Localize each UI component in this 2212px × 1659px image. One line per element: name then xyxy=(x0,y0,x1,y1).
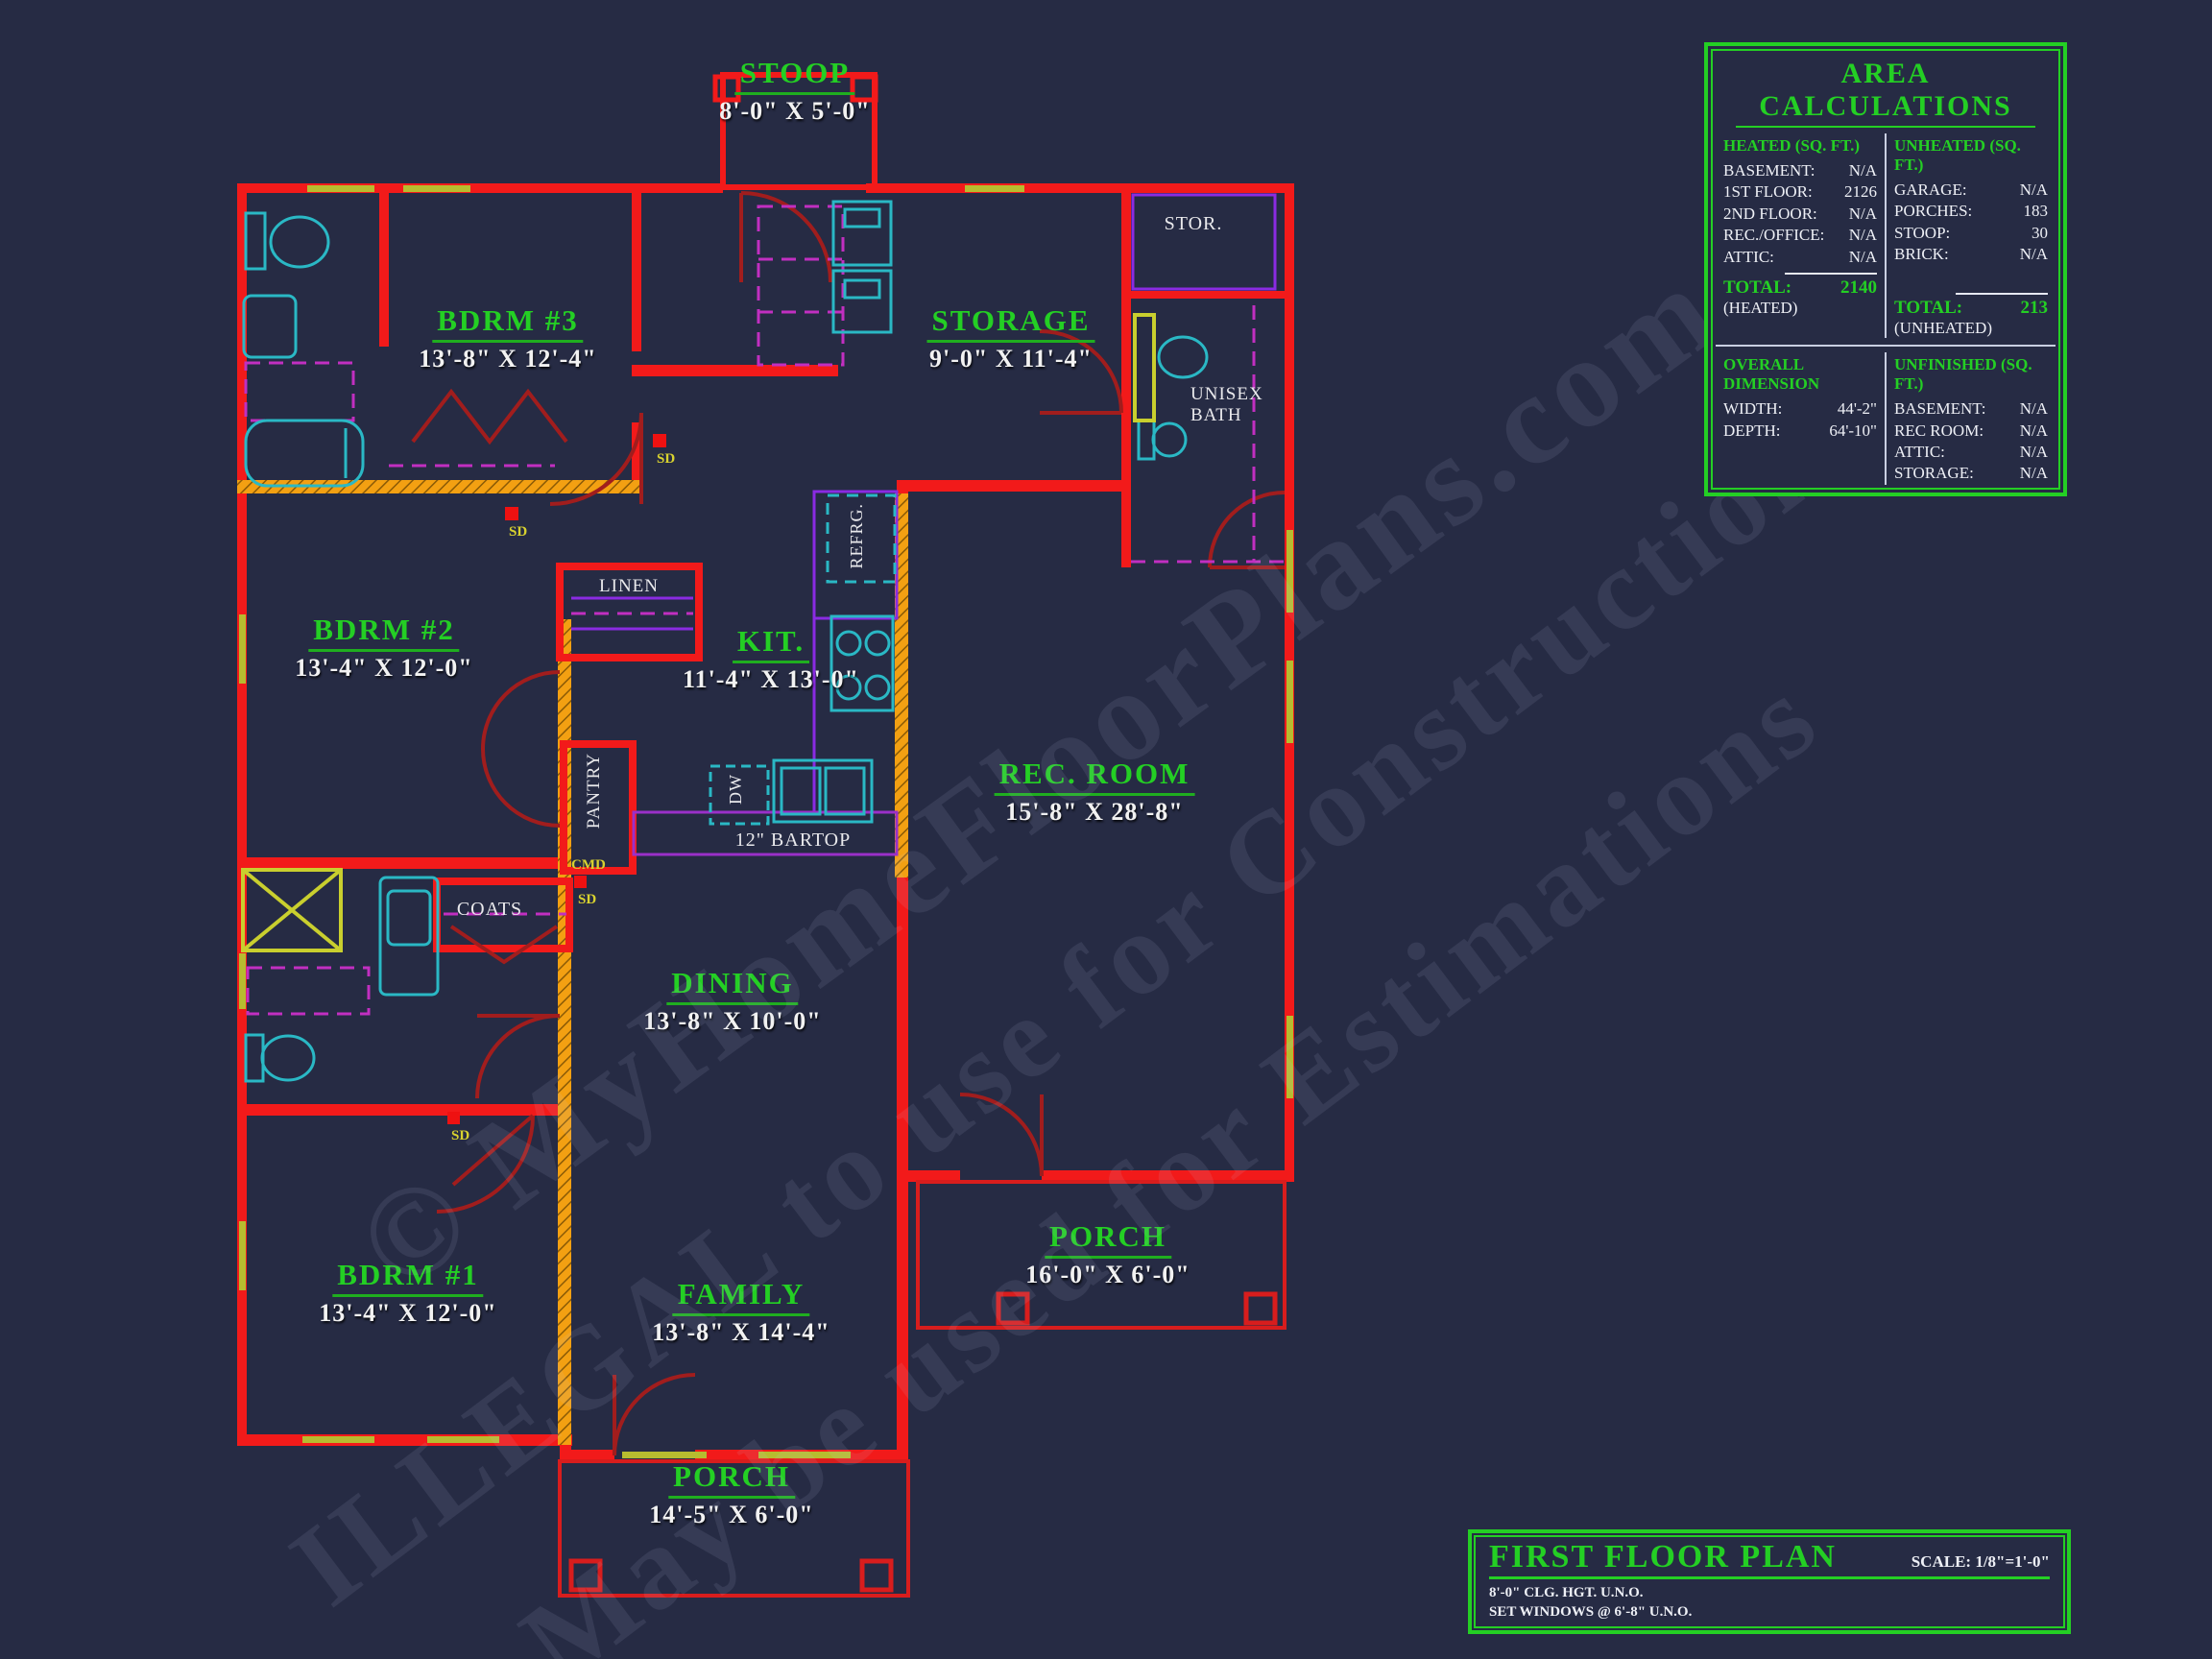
overall-dimension-column: OVERALL DIMENSION WIDTH:44'-2" DEPTH:64'… xyxy=(1716,352,1885,485)
room-label-bdrm2: BDRM #2 13'-4" X 12'-0" xyxy=(295,613,472,683)
heated-total-row: TOTAL:2140 xyxy=(1723,277,1877,299)
table-row: 2ND FLOOR:N/A xyxy=(1723,204,1877,225)
room-label-bdrm1: BDRM #1 13'-4" X 12'-0" xyxy=(319,1258,496,1328)
refrg-label: REFRG. xyxy=(847,503,867,569)
table-row: REC ROOM:N/A xyxy=(1894,421,2048,442)
unheated-total-row: TOTAL:213 xyxy=(1894,298,2048,319)
room-label-dining: DINING 13'-8" X 10'-0" xyxy=(643,966,821,1036)
room-label-kitchen: KIT. 11'-4" X 13'-0" xyxy=(683,624,859,694)
table-row: REC./OFFICE:N/A xyxy=(1723,225,1877,246)
table-row: GARAGE:N/A xyxy=(1894,180,2048,201)
area-calculations-panel: AREA CALCULATIONS HEATED (SQ. FT.) BASEM… xyxy=(1704,42,2067,496)
table-row: ATTIC:N/A xyxy=(1723,247,1877,268)
bartop-label: 12" BARTOP xyxy=(735,829,852,852)
heated-column: HEATED (SQ. FT.) BASEMENT:N/A 1ST FLOOR:… xyxy=(1716,133,1885,338)
room-label-rec-room: REC. ROOM 15'-8" X 28'-8" xyxy=(995,757,1195,827)
unisex-bath-label: UNISEX BATH xyxy=(1190,384,1263,426)
toilet-icon xyxy=(246,213,328,269)
pantry-label: PANTRY xyxy=(584,753,605,829)
table-row: DEPTH:64'-10" xyxy=(1723,421,1877,442)
dryer-icon xyxy=(833,271,891,332)
room-label-porch-bottom: PORCH 14'-5" X 6'-0" xyxy=(649,1459,813,1529)
cabinet-lines xyxy=(571,195,1275,811)
room-label-storage: STORAGE 9'-0" X 11'-4" xyxy=(926,303,1094,373)
unfinished-column: UNFINISHED (SQ. FT.) BASEMENT:N/A REC RO… xyxy=(1885,352,2056,485)
window-note: SET WINDOWS @ 6'-8" U.N.O. xyxy=(1489,1602,2050,1622)
room-label-stoop: STOOP 8'-0" X 5'-0" xyxy=(719,56,870,126)
dw-label: DW xyxy=(726,774,746,805)
table-row: STOOP:30 xyxy=(1894,223,2048,244)
title-block: FIRST FLOOR PLAN SCALE: 1/8"=1'-0" 8'-0"… xyxy=(1468,1529,2071,1634)
area-calculations-title: AREA CALCULATIONS xyxy=(1736,58,2035,128)
linen-label: LINEN xyxy=(599,576,659,597)
sd-label: SD xyxy=(451,1128,469,1144)
table-row: PORCHES:183 xyxy=(1894,201,2048,222)
room-label-family: FAMILY 13'-8" X 14'-4" xyxy=(652,1277,829,1347)
bath-sink-icon xyxy=(244,296,296,357)
floor-plan-sheet: © MyHomeFloorPlans.com ILLEGAL to use fo… xyxy=(0,0,2212,1659)
washer-icon xyxy=(833,202,891,265)
sd-label: SD xyxy=(509,524,527,541)
coats-label: COATS xyxy=(457,899,522,921)
toilet-icon xyxy=(246,1035,314,1081)
table-row: BRICK:N/A xyxy=(1894,244,2048,265)
sd-label: SD xyxy=(578,892,596,908)
stor-closet-label: STOR. xyxy=(1165,213,1223,235)
bathtub-icon xyxy=(246,421,363,486)
table-row: ATTIC:N/A xyxy=(1894,442,2048,463)
sd-label: SD xyxy=(657,451,675,468)
vanity-icon xyxy=(380,878,438,995)
table-row: 1ST FLOOR:2126 xyxy=(1723,181,1877,203)
room-label-porch-right: PORCH 16'-0" X 6'-0" xyxy=(1025,1219,1190,1289)
table-row: BASEMENT:N/A xyxy=(1894,398,2048,420)
table-row: WIDTH:44'-2" xyxy=(1723,398,1877,420)
room-label-bdrm3: BDRM #3 13'-8" X 12'-4" xyxy=(419,303,596,373)
scale-note: SCALE: 1/8"=1'-0" xyxy=(1911,1552,2050,1572)
ceiling-note: 8'-0" CLG. HGT. U.N.O. xyxy=(1489,1583,2050,1602)
table-row: BASEMENT:N/A xyxy=(1723,160,1877,181)
table-row: STORAGE:N/A xyxy=(1894,463,2048,484)
page-title: FIRST FLOOR PLAN xyxy=(1489,1539,1837,1575)
cmd-label: CMD xyxy=(571,857,606,874)
unheated-column: UNHEATED (SQ. FT.) GARAGE:N/A PORCHES:18… xyxy=(1885,133,2056,338)
